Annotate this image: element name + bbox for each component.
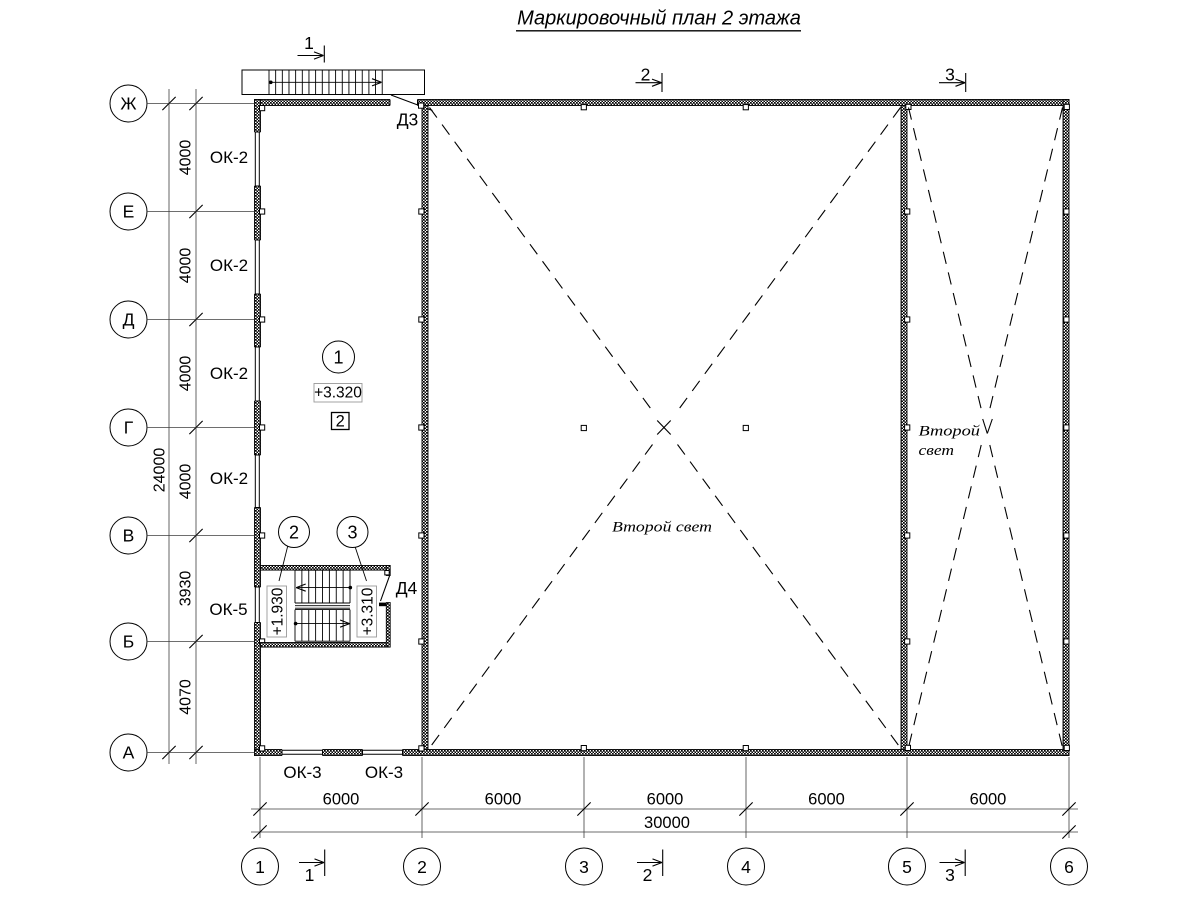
svg-text:2: 2 xyxy=(289,522,299,542)
svg-text:5: 5 xyxy=(902,857,912,877)
svg-text:2: 2 xyxy=(643,865,653,885)
svg-text:ОК-3: ОК-3 xyxy=(365,763,403,782)
svg-text:6000: 6000 xyxy=(970,791,1007,809)
svg-text:6000: 6000 xyxy=(808,791,845,809)
svg-text:Е: Е xyxy=(123,202,135,222)
svg-text:ОК-2: ОК-2 xyxy=(210,469,248,488)
svg-text:ОК-2: ОК-2 xyxy=(210,364,248,383)
svg-text:4000: 4000 xyxy=(178,140,195,176)
svg-text:2: 2 xyxy=(336,412,345,430)
svg-text:Второй: Второй xyxy=(919,424,981,440)
svg-text:+3.310: +3.310 xyxy=(359,587,376,635)
svg-text:Д3: Д3 xyxy=(397,110,419,130)
svg-text:А: А xyxy=(123,743,135,763)
svg-text:6: 6 xyxy=(1064,857,1074,877)
svg-text:+1.930: +1.930 xyxy=(269,587,286,635)
svg-text:Д: Д xyxy=(123,310,135,330)
svg-text:4000: 4000 xyxy=(178,248,195,284)
svg-text:3: 3 xyxy=(579,857,589,877)
svg-text:свет: свет xyxy=(919,443,955,459)
svg-text:3: 3 xyxy=(945,865,955,885)
svg-text:1: 1 xyxy=(304,33,314,53)
svg-text:Второй свет: Второй свет xyxy=(612,520,712,536)
svg-text:6000: 6000 xyxy=(485,791,522,809)
svg-text:В: В xyxy=(123,526,135,546)
svg-text:1: 1 xyxy=(255,857,265,877)
svg-text:4000: 4000 xyxy=(178,356,195,392)
svg-text:3: 3 xyxy=(945,65,955,85)
svg-text:1: 1 xyxy=(333,347,343,367)
svg-text:ОК-5: ОК-5 xyxy=(209,600,247,619)
svg-text:4070: 4070 xyxy=(178,679,195,715)
svg-text:ОК-3: ОК-3 xyxy=(283,763,321,782)
svg-text:6000: 6000 xyxy=(647,791,684,809)
svg-text:4000: 4000 xyxy=(178,464,195,500)
svg-text:2: 2 xyxy=(417,857,427,877)
svg-text:3: 3 xyxy=(347,522,357,542)
svg-text:3930: 3930 xyxy=(178,571,195,607)
svg-text:Ж: Ж xyxy=(120,94,136,114)
svg-text:30000: 30000 xyxy=(644,814,690,832)
svg-text:Маркировочный план 2 этажа: Маркировочный план 2 этажа xyxy=(517,8,801,30)
svg-text:2: 2 xyxy=(641,65,651,85)
svg-text:ОК-2: ОК-2 xyxy=(210,256,248,275)
svg-text:Г: Г xyxy=(124,418,134,438)
svg-text:ОК-2: ОК-2 xyxy=(210,148,248,167)
svg-text:6000: 6000 xyxy=(323,791,360,809)
svg-text:Д4: Д4 xyxy=(396,578,418,598)
svg-text:1: 1 xyxy=(305,865,315,885)
svg-text:Б: Б xyxy=(123,632,134,652)
svg-text:24000: 24000 xyxy=(151,448,168,493)
svg-text:+3.320: +3.320 xyxy=(314,385,362,402)
svg-text:4: 4 xyxy=(741,857,751,877)
